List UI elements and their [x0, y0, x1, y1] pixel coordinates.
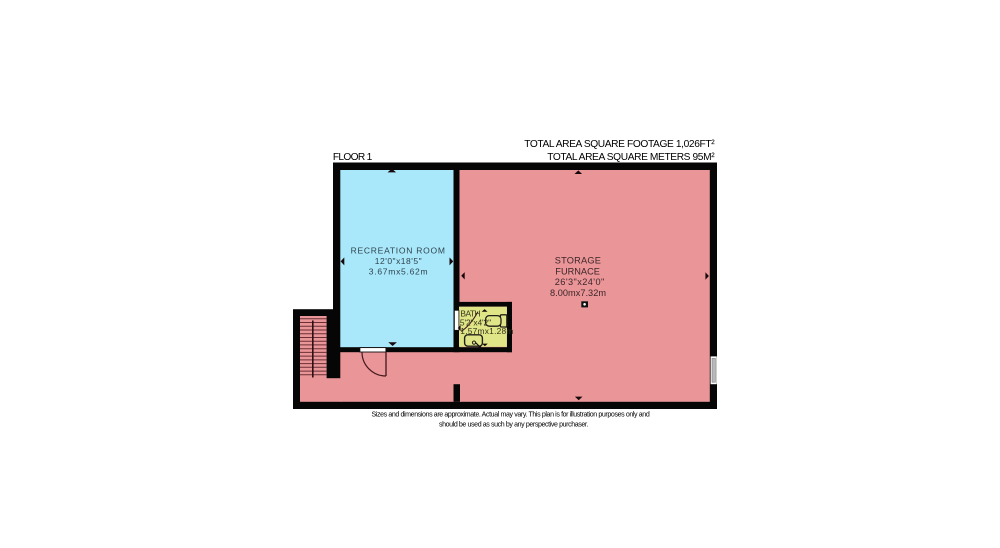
svg-text:8.00mx7.32m: 8.00mx7.32m: [550, 288, 606, 298]
svg-text:FURNACE: FURNACE: [555, 266, 600, 276]
svg-text:26'3"x24'0": 26'3"x24'0": [555, 277, 605, 287]
svg-text:Sizes and dimensions are appro: Sizes and dimensions are approximate. Ac…: [371, 412, 649, 419]
svg-text:should be used as such by any: should be used as such by any perspectiv…: [439, 422, 589, 429]
svg-text:RECREATION ROOM: RECREATION ROOM: [351, 245, 445, 255]
svg-text:FLOOR 1: FLOOR 1: [333, 152, 373, 163]
svg-text:STORAGE: STORAGE: [555, 255, 601, 265]
svg-text:TOTAL AREA SQUARE METERS 95M²: TOTAL AREA SQUARE METERS 95M²: [547, 152, 715, 163]
svg-text:1.57mx1.28m: 1.57mx1.28m: [460, 326, 513, 336]
svg-text:3.67mx5.62m: 3.67mx5.62m: [369, 267, 428, 277]
svg-text:12'0"x18'5": 12'0"x18'5": [375, 256, 422, 266]
svg-text:TOTAL AREA SQUARE FOOTAGE 1,02: TOTAL AREA SQUARE FOOTAGE 1,026FT²: [524, 139, 715, 150]
